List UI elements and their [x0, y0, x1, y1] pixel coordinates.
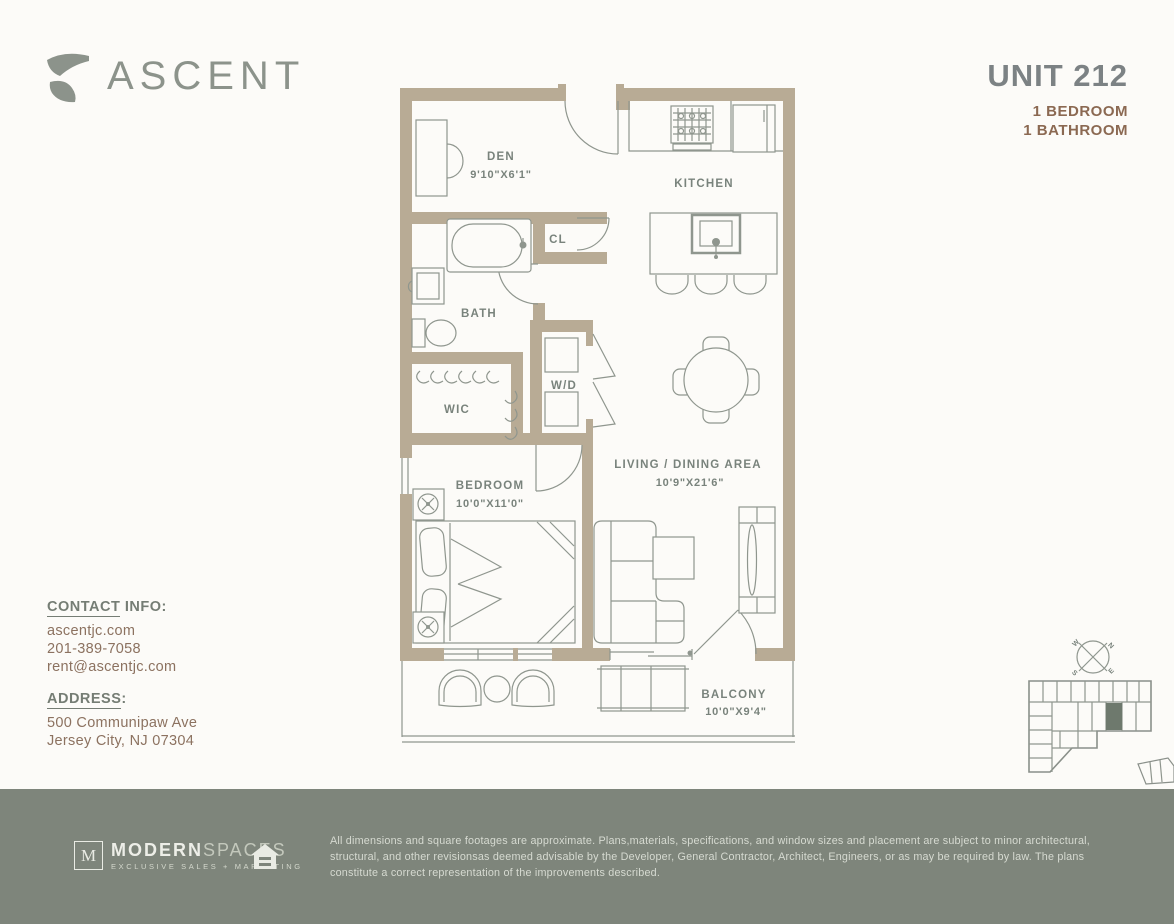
- balcony-lounger: [597, 666, 689, 711]
- contact-info: CONTACT INFO: ascentjc.com 201-389-7058 …: [47, 598, 176, 676]
- unit-specs: 1 BEDROOM 1 BATHROOM: [987, 102, 1128, 140]
- balcony-chair-right: [512, 670, 554, 706]
- contact-email: rent@ascentjc.com: [47, 658, 176, 676]
- floorplan-sheet: ASCENT UNIT 212 1 BEDROOM 1 BATHROOM: [0, 0, 1174, 924]
- keyplan-corner-piece: [1138, 758, 1174, 784]
- svg-text:E: E: [1108, 667, 1116, 675]
- bathtub: [447, 219, 531, 272]
- address-info: ADDRESS: 500 Communipaw Ave Jersey City,…: [47, 690, 197, 750]
- building-keyplan: [1029, 681, 1174, 784]
- toilet: [412, 319, 456, 347]
- spec-bathroom: 1 BATHROOM: [987, 121, 1128, 140]
- coffee-table: [653, 537, 694, 579]
- balcony-chair-left: [439, 670, 481, 706]
- bedroom-door: [536, 445, 582, 491]
- wd-label: W/D: [551, 380, 577, 392]
- nightstand-bottom: [413, 612, 444, 643]
- bathroom-sink: [408, 268, 444, 304]
- legal-disclaimer: All dimensions and square footages are a…: [330, 833, 1102, 881]
- desk: [416, 120, 463, 196]
- bath-label: BATH: [461, 308, 497, 320]
- address-line1: 500 Communipaw Ave: [47, 714, 197, 732]
- living-label: LIVING / DINING AREA: [614, 459, 762, 471]
- balcony-door: [688, 610, 757, 656]
- footer-bar: M MODERNSPACES EXCLUSIVE SALES + MARKETI…: [0, 789, 1174, 924]
- fridge: [733, 105, 775, 152]
- unit-title: UNIT 212: [987, 58, 1128, 94]
- kitchen-label: KITCHEN: [674, 178, 734, 190]
- closet-label: CL: [549, 234, 567, 246]
- island-stools: [656, 275, 766, 294]
- address-line2: Jersey City, NJ 07304: [47, 732, 197, 750]
- nightstand-top: [413, 489, 444, 520]
- bifold-doors-wd: [593, 334, 615, 427]
- tv-console: [739, 507, 775, 613]
- svg-text:W: W: [1071, 638, 1081, 648]
- unit-highlight: [1106, 703, 1122, 730]
- bedroom-label: BEDROOM: [456, 480, 524, 492]
- contact-website: ascentjc.com: [47, 622, 176, 640]
- modern-spaces-monogram: M: [74, 841, 103, 870]
- bedroom-dims: 10'0"X11'0": [456, 498, 524, 510]
- kitchen-island: [650, 213, 777, 274]
- address-heading: ADDRESS:: [47, 690, 197, 708]
- wic-label: WIC: [444, 404, 470, 416]
- equal-housing-icon: [250, 842, 280, 872]
- contact-heading: CONTACT INFO:: [47, 598, 176, 616]
- balcony-label: BALCONY: [701, 689, 766, 701]
- svg-text:S: S: [1070, 669, 1078, 677]
- entry-door: [565, 101, 618, 154]
- ascent-logo-text: ASCENT: [107, 54, 305, 99]
- den-dims: 9'10"X6'1": [470, 169, 532, 181]
- compass-keyplan: N W E S: [1015, 628, 1174, 788]
- ascent-logo: ASCENT: [43, 48, 305, 104]
- spec-bedroom: 1 BEDROOM: [987, 102, 1128, 121]
- balcony-table: [484, 676, 510, 702]
- unit-header: UNIT 212 1 BEDROOM 1 BATHROOM: [987, 58, 1128, 140]
- floor-plan: DEN 9'10"X6'1" KITCHEN CL BATH W/D WIC B…: [395, 82, 805, 758]
- living-dims: 10'9"X21'6": [656, 477, 725, 489]
- contact-phone: 201-389-7058: [47, 640, 176, 658]
- balcony-dims: 10'0"X9'4": [705, 706, 767, 718]
- ascent-logo-mark: [43, 48, 95, 104]
- compass-icon: N W E S: [1070, 638, 1116, 677]
- dining-table: [673, 337, 759, 423]
- den-label: DEN: [487, 151, 515, 163]
- stove: [671, 106, 713, 150]
